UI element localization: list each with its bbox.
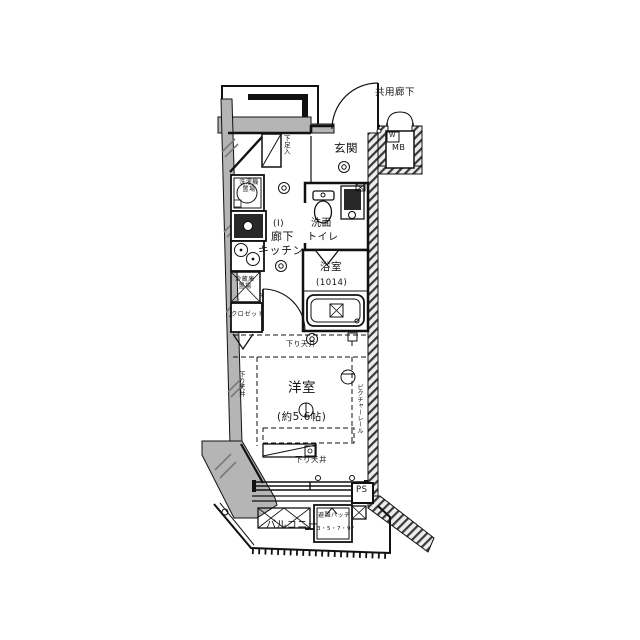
light-symbol (339, 162, 350, 173)
pipe-space-label: PS (356, 486, 368, 496)
shoe-box-label: 下足入 (282, 135, 289, 155)
entrance-label: 玄関 (334, 142, 358, 155)
kitchen-fixtures (231, 175, 266, 349)
escape-hatch-floors-label: 3・5・7・9F (317, 526, 355, 532)
closet-label: クロゼット (231, 312, 262, 319)
washroom-label-1: 洗面 (311, 218, 332, 229)
bath-size-label: (1014) (316, 279, 347, 289)
washroom-label-2: トイレ (307, 232, 339, 243)
window-lock (316, 476, 321, 481)
floor-plan: 共用廊下 W MB 玄関 下足入 洗濯機置場 (Ⅰ) 廊下 キッチン 冷蔵庫置場… (0, 0, 640, 640)
vanity-sink (344, 189, 361, 210)
vent-symbol (348, 333, 357, 341)
diagonal-wall (230, 137, 262, 172)
floorplan-drawing (0, 0, 640, 640)
kitchen-label: キッチン (258, 245, 304, 257)
hook-symbol (341, 370, 355, 384)
common-corridor-label: 共用廊下 (375, 88, 415, 99)
light-symbol (276, 261, 287, 272)
room-door (263, 289, 305, 331)
fridge-place-label: 冷蔵庫置場 (232, 277, 258, 290)
meter-box (386, 112, 414, 168)
lowered-ceiling-label-top: 下り天井 (286, 341, 316, 349)
hall-mark-label: (Ⅰ) (273, 219, 284, 229)
washer-place-label: 洗濯機置場 (236, 180, 262, 193)
hall-label: 廊下 (271, 231, 294, 243)
lowered-ceiling-label-left: 下り天井 (237, 371, 244, 397)
light-symbol (279, 183, 290, 194)
window-lock (350, 476, 355, 481)
door-mark-label: R (259, 293, 264, 300)
entrance-door-arc (332, 83, 378, 129)
lowered-ceiling-label-bottom: 下り天井 (295, 456, 327, 464)
water-meter-label: W (389, 132, 396, 139)
escape-hatch-box (314, 505, 352, 542)
room-door-arc (263, 289, 305, 331)
picture-rail-label: ピクチャーレール (355, 384, 362, 434)
western-room-size-label: (約5.6帖) (277, 412, 326, 424)
escape-hatch-label: 避難ハッチ (318, 513, 351, 520)
bath-label: 浴室 (320, 262, 342, 274)
balcony-label: バルコニー (266, 520, 318, 531)
western-room-label: 洋室 (288, 381, 316, 396)
meter-box-label: MB (392, 144, 405, 153)
